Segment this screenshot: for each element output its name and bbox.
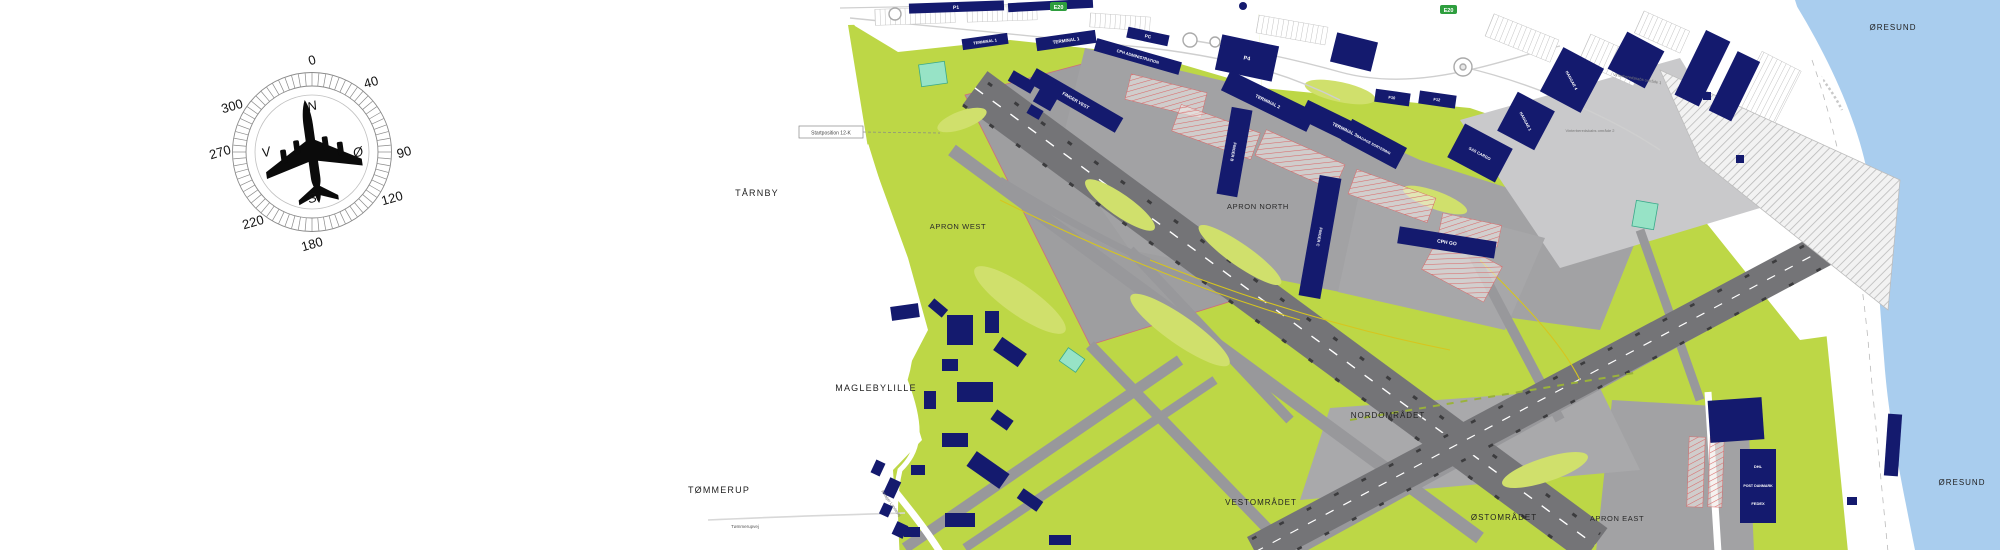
building	[1049, 535, 1071, 545]
area-label-apron-east: APRON EAST	[1590, 514, 1644, 523]
building	[942, 359, 958, 371]
place-label-tommerup: TØMMERUP	[688, 485, 750, 495]
winter-area2-label: Vinterberedskabs område 2	[1565, 128, 1615, 133]
building	[945, 513, 975, 527]
area-label-apron-north: APRON NORTH	[1227, 202, 1289, 211]
e20-shield-west: E20	[1050, 2, 1067, 11]
e20-west-label: E20	[1054, 5, 1064, 11]
area-label-apron-west: APRON WEST	[930, 222, 986, 231]
building	[924, 391, 936, 409]
place-label-tarnby: TÅRNBY	[735, 188, 779, 198]
p1-label: P1	[953, 5, 960, 11]
building	[1847, 497, 1857, 505]
e20-east-label: E20	[1444, 8, 1454, 14]
building	[942, 433, 968, 447]
area-label-vestomradet: VESTOMRÅDET	[1225, 498, 1297, 507]
water-label-oresund-bottom: ØRESUND	[1938, 478, 1985, 487]
area-label-nordomradet: NORDOMRÅDET	[1351, 411, 1426, 420]
building	[890, 303, 920, 321]
water-label-oresund-top: ØRESUND	[1869, 23, 1916, 32]
road-label-tommerupvej: Tømmerupvej	[731, 524, 759, 529]
startposition-label: Startposition 12-K	[811, 131, 851, 137]
building	[947, 315, 973, 345]
building	[957, 382, 993, 402]
building	[1708, 397, 1765, 443]
compass-rose: 0 40 90 120 180 220 270 300 N Ø S V	[207, 47, 417, 257]
dhl-label: DHL	[1754, 464, 1763, 469]
compass-graphic	[207, 47, 417, 257]
control-tower	[1239, 2, 1247, 10]
airport-map-page: E20 E20 Startposition 12-K TÅRNBY MAGLEB…	[0, 0, 2000, 550]
building	[985, 311, 999, 333]
e20-shield-east: E20	[1440, 5, 1457, 14]
post-danmark-label: POST DANMARK	[1743, 484, 1773, 488]
fedex-label: FEDEX	[1751, 501, 1765, 506]
building	[911, 465, 925, 475]
place-label-maglebylille: MAGLEBYLILLE	[835, 383, 916, 393]
area-label-ostomradet: ØSTOMRÅDET	[1471, 513, 1537, 522]
